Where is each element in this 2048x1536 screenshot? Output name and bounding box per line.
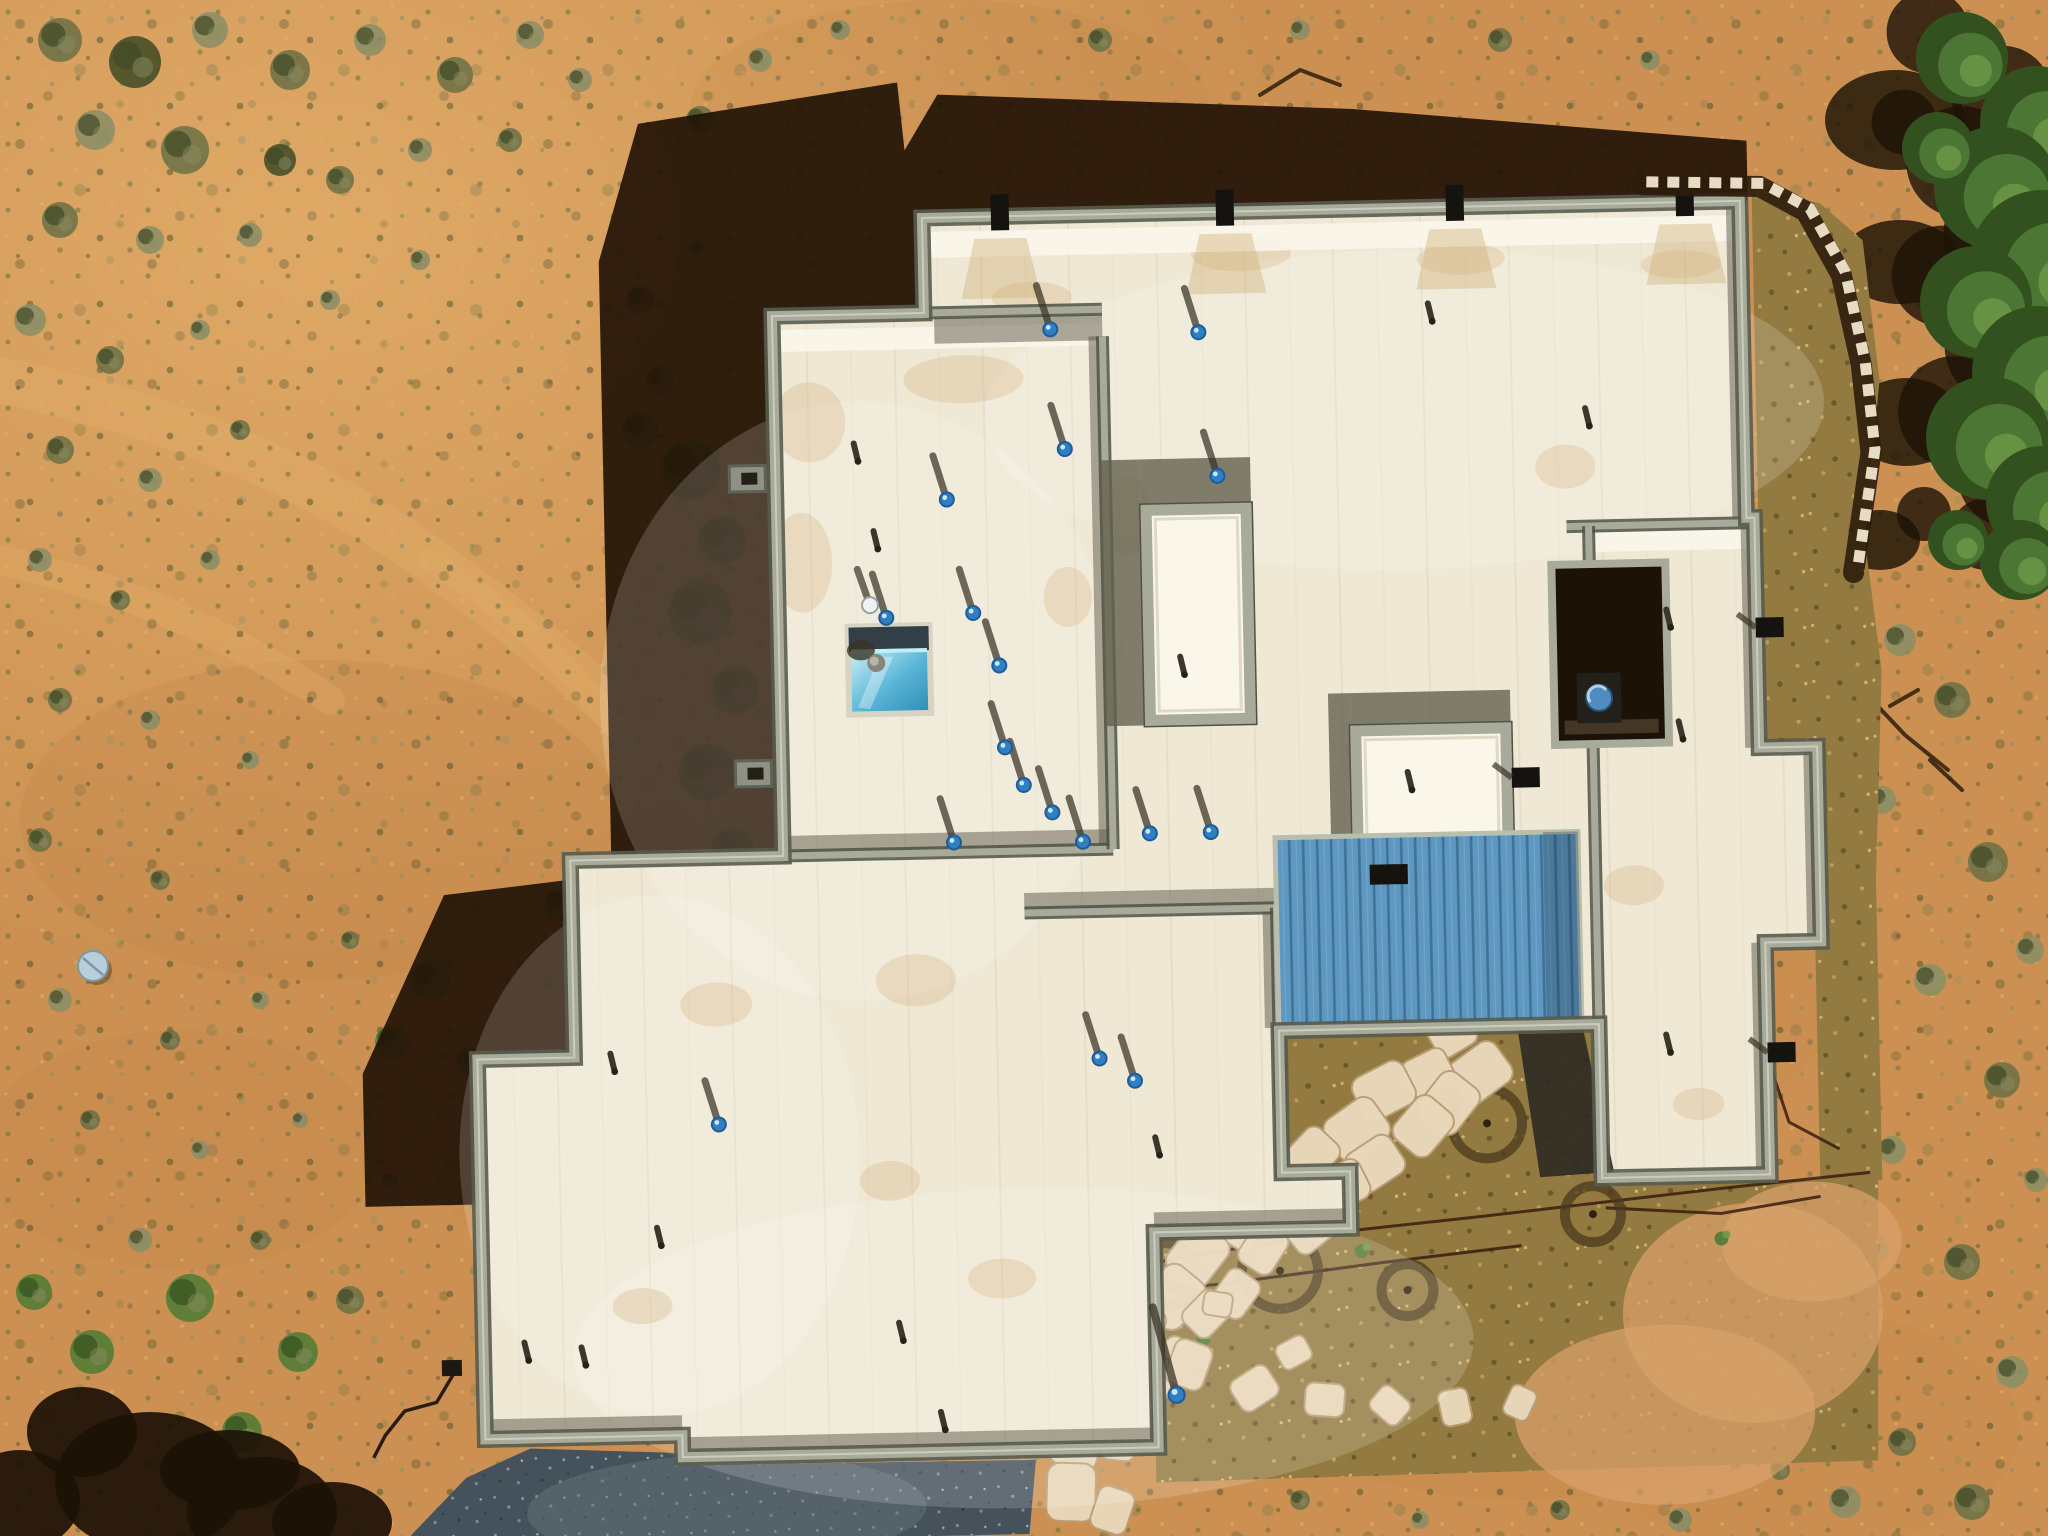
- canale-scupper: [1445, 185, 1464, 221]
- shrub: [1884, 624, 1916, 656]
- shrub: [292, 1112, 308, 1128]
- shrub: [128, 1228, 152, 1252]
- shrub: [1996, 1356, 2028, 1388]
- shrub: [1290, 20, 1310, 40]
- canale-scupper: [1767, 1042, 1795, 1063]
- shrub: [48, 988, 72, 1012]
- shrub: [70, 1330, 114, 1374]
- shrub: [251, 991, 269, 1009]
- shrub: [320, 290, 340, 310]
- shrub: [1954, 1484, 1990, 1520]
- shrub: [14, 304, 46, 336]
- metal-roof-seams: [1275, 831, 1582, 1027]
- shrub: [341, 931, 359, 949]
- shrub: [28, 548, 52, 572]
- shrub: [568, 68, 592, 92]
- shrub: [270, 50, 310, 90]
- shrub: [96, 346, 124, 374]
- shrub: [166, 1274, 214, 1322]
- shrub: [150, 870, 170, 890]
- shrub: [336, 1286, 364, 1314]
- shrub: [191, 1141, 209, 1159]
- shrub: [278, 1332, 318, 1372]
- clerestory-box: [1141, 503, 1256, 725]
- shrub: [109, 36, 161, 88]
- shrub: [192, 12, 228, 48]
- shrub: [1878, 1136, 1906, 1164]
- aerial-photo-stage: Aerial top-down drone photo of a flat-ro…: [0, 0, 2048, 1536]
- shrub: [38, 18, 82, 62]
- shrub: [140, 710, 160, 730]
- roof-hatch: [1370, 864, 1408, 885]
- canale-scupper: [1512, 767, 1540, 788]
- shrub: [1290, 1490, 1310, 1510]
- juniper-tree: [1902, 112, 1974, 184]
- canale-scupper: [1755, 617, 1783, 638]
- shrub: [136, 226, 164, 254]
- clerestory-cast-shadow: [1100, 459, 1146, 726]
- parapet-scupper-opening: [741, 473, 757, 485]
- aerial-photo: [0, 0, 2048, 1536]
- shrub: [2024, 1168, 2048, 1192]
- canale-scupper: [990, 194, 1009, 230]
- shrub: [1640, 50, 1660, 70]
- shrub: [1984, 1062, 2020, 1098]
- shrub: [1934, 682, 1970, 718]
- shrub: [250, 1230, 270, 1250]
- utility-box: [442, 1360, 462, 1376]
- shrub: [1829, 1486, 1861, 1518]
- shrub: [110, 590, 130, 610]
- shrub: [161, 126, 209, 174]
- shrub: [410, 250, 430, 270]
- clerestory-cast-shadow: [1350, 690, 1511, 726]
- shrub: [1914, 964, 1946, 996]
- shrub: [408, 138, 432, 162]
- shrub: [48, 688, 72, 712]
- shrub: [1088, 28, 1112, 52]
- turbine-vent: [1577, 672, 1622, 723]
- shrub: [516, 21, 544, 49]
- shrub: [75, 110, 115, 150]
- shrub: [1550, 1500, 1570, 1520]
- metal-roof-shadow: [1543, 831, 1582, 1022]
- shrub: [160, 1030, 180, 1050]
- shrub: [1968, 842, 2008, 882]
- parapet-wall: [924, 309, 1102, 313]
- canale-scupper: [1215, 189, 1234, 225]
- parapet-inner-highlight: [1595, 529, 1749, 552]
- shrub: [437, 57, 473, 93]
- shrub: [1668, 1508, 1692, 1532]
- shrub: [241, 751, 259, 769]
- shrub: [16, 1274, 52, 1310]
- shrub: [2016, 936, 2044, 964]
- shrub: [46, 436, 74, 464]
- shrub: [354, 24, 386, 56]
- shrub: [138, 468, 162, 492]
- shrub: [1488, 28, 1512, 52]
- shrub: [80, 1110, 100, 1130]
- shrub: [200, 550, 220, 570]
- shrub: [190, 320, 210, 340]
- parapet-scupper-opening: [747, 767, 763, 779]
- shrub: [28, 828, 52, 852]
- juniper-tree: [1928, 510, 1988, 570]
- clerestory-cast-shadow: [1140, 457, 1251, 505]
- shrub: [230, 420, 250, 440]
- shrub: [42, 202, 78, 238]
- shrub: [1888, 1428, 1916, 1456]
- shrub: [748, 48, 772, 72]
- shrub: [326, 166, 354, 194]
- shrub: [1944, 1244, 1980, 1280]
- shrub: [238, 223, 262, 247]
- shrub: [1411, 1511, 1429, 1529]
- shrub: [264, 144, 296, 176]
- tree-shadow: [160, 1430, 300, 1510]
- shrub: [830, 20, 850, 40]
- shrub: [498, 128, 522, 152]
